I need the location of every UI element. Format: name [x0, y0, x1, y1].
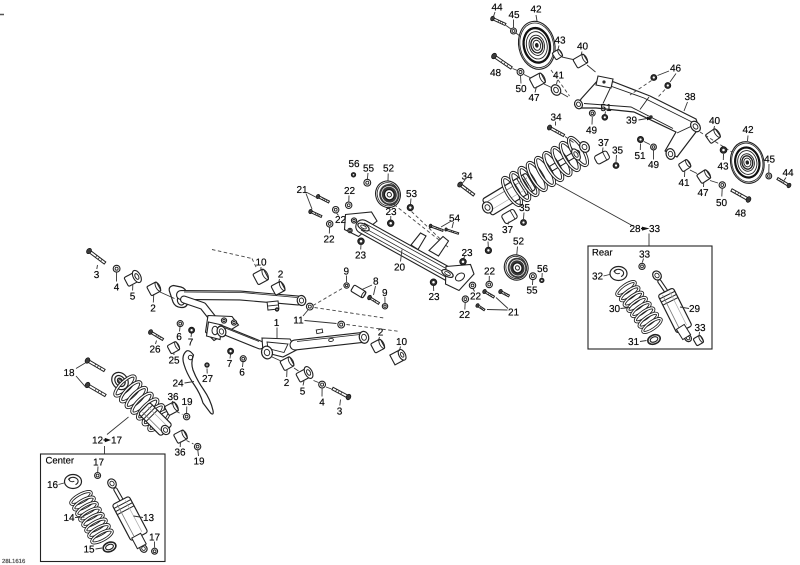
- svg-text:47: 47: [697, 188, 709, 199]
- svg-text:16: 16: [47, 480, 59, 491]
- svg-text:56: 56: [537, 264, 549, 275]
- svg-text:37: 37: [598, 138, 610, 149]
- svg-text:44: 44: [782, 168, 794, 179]
- svg-text:11: 11: [293, 316, 304, 327]
- svg-text:36: 36: [167, 392, 179, 403]
- svg-text:22: 22: [470, 292, 482, 303]
- svg-text:23: 23: [355, 251, 367, 262]
- svg-text:40: 40: [709, 116, 721, 127]
- svg-text:44: 44: [491, 3, 503, 14]
- svg-text:54: 54: [449, 214, 461, 225]
- svg-text:26: 26: [149, 345, 161, 356]
- svg-text:20: 20: [394, 263, 406, 274]
- svg-text:28L1616: 28L1616: [2, 558, 26, 565]
- svg-text:31: 31: [628, 337, 640, 348]
- svg-text:41: 41: [678, 178, 690, 189]
- svg-text:14: 14: [63, 513, 75, 524]
- svg-text:42: 42: [530, 5, 542, 16]
- svg-text:35: 35: [519, 203, 531, 214]
- svg-text:38: 38: [684, 92, 696, 103]
- svg-text:5: 5: [130, 292, 136, 303]
- svg-text:6: 6: [239, 368, 245, 379]
- svg-text:Center: Center: [46, 456, 75, 467]
- svg-text:4: 4: [319, 398, 325, 409]
- svg-text:29: 29: [689, 304, 701, 315]
- svg-text:56: 56: [348, 159, 360, 170]
- svg-text:18: 18: [63, 368, 75, 379]
- svg-text:28: 28: [629, 224, 641, 235]
- svg-text:23: 23: [461, 248, 473, 259]
- svg-text:19: 19: [181, 397, 193, 408]
- svg-text:10: 10: [255, 258, 267, 269]
- svg-text:50: 50: [716, 198, 728, 209]
- svg-text:48: 48: [735, 209, 747, 220]
- svg-text:39: 39: [626, 116, 638, 127]
- svg-text:2: 2: [284, 378, 290, 389]
- svg-text:22: 22: [335, 215, 347, 226]
- svg-text:24: 24: [172, 379, 184, 390]
- svg-text:34: 34: [461, 172, 473, 183]
- svg-text:22: 22: [323, 235, 335, 246]
- svg-text:42: 42: [742, 125, 754, 136]
- svg-text:30: 30: [609, 304, 621, 315]
- svg-text:22: 22: [344, 186, 356, 197]
- svg-text:6: 6: [176, 332, 182, 343]
- svg-text:12: 12: [92, 436, 104, 447]
- svg-text:3: 3: [94, 270, 100, 281]
- svg-text:55: 55: [526, 286, 538, 297]
- svg-text:49: 49: [648, 160, 660, 171]
- svg-text:Rear: Rear: [592, 248, 613, 259]
- svg-text:50: 50: [515, 84, 527, 95]
- svg-text:33: 33: [694, 323, 706, 334]
- svg-text:41: 41: [553, 71, 565, 82]
- svg-text:33: 33: [639, 250, 651, 261]
- svg-text:7: 7: [188, 338, 194, 349]
- svg-text:45: 45: [508, 10, 520, 21]
- svg-text:8: 8: [373, 277, 379, 288]
- svg-text:27: 27: [202, 374, 214, 385]
- svg-text:1: 1: [274, 318, 280, 329]
- svg-text:33: 33: [649, 224, 661, 235]
- svg-text:22: 22: [459, 310, 471, 321]
- svg-text:52: 52: [383, 164, 395, 175]
- svg-text:3: 3: [337, 407, 343, 418]
- svg-text:51: 51: [634, 151, 646, 162]
- svg-text:22: 22: [484, 267, 496, 278]
- svg-text:48: 48: [490, 68, 502, 79]
- svg-text:52: 52: [513, 237, 525, 248]
- svg-text:55: 55: [363, 164, 375, 175]
- svg-text:34: 34: [550, 113, 562, 124]
- svg-text:32: 32: [592, 272, 604, 283]
- svg-text:4: 4: [114, 283, 120, 294]
- svg-text:49: 49: [586, 126, 598, 137]
- svg-text:10: 10: [396, 337, 408, 348]
- svg-text:2: 2: [150, 304, 156, 315]
- svg-text:37: 37: [502, 225, 514, 236]
- svg-text:15: 15: [83, 545, 95, 556]
- svg-text:13: 13: [143, 513, 155, 524]
- svg-text:47: 47: [528, 93, 540, 104]
- svg-text:36: 36: [174, 448, 186, 459]
- svg-text:46: 46: [670, 64, 682, 75]
- svg-text:21: 21: [508, 308, 520, 319]
- svg-text:35: 35: [612, 146, 624, 157]
- svg-text:40: 40: [577, 42, 589, 53]
- svg-text:45: 45: [764, 155, 776, 166]
- svg-text:19: 19: [193, 457, 205, 468]
- svg-text:2: 2: [278, 270, 284, 281]
- svg-text:25: 25: [168, 356, 180, 367]
- svg-text:17: 17: [93, 458, 105, 469]
- svg-text:7: 7: [227, 359, 233, 370]
- svg-text:43: 43: [717, 162, 729, 173]
- svg-text:53: 53: [406, 189, 418, 200]
- svg-text:23: 23: [428, 292, 440, 303]
- svg-text:17: 17: [111, 436, 123, 447]
- svg-text:43: 43: [554, 36, 566, 47]
- svg-text:5: 5: [300, 387, 306, 398]
- svg-text:2: 2: [378, 328, 384, 339]
- svg-text:51: 51: [600, 103, 612, 114]
